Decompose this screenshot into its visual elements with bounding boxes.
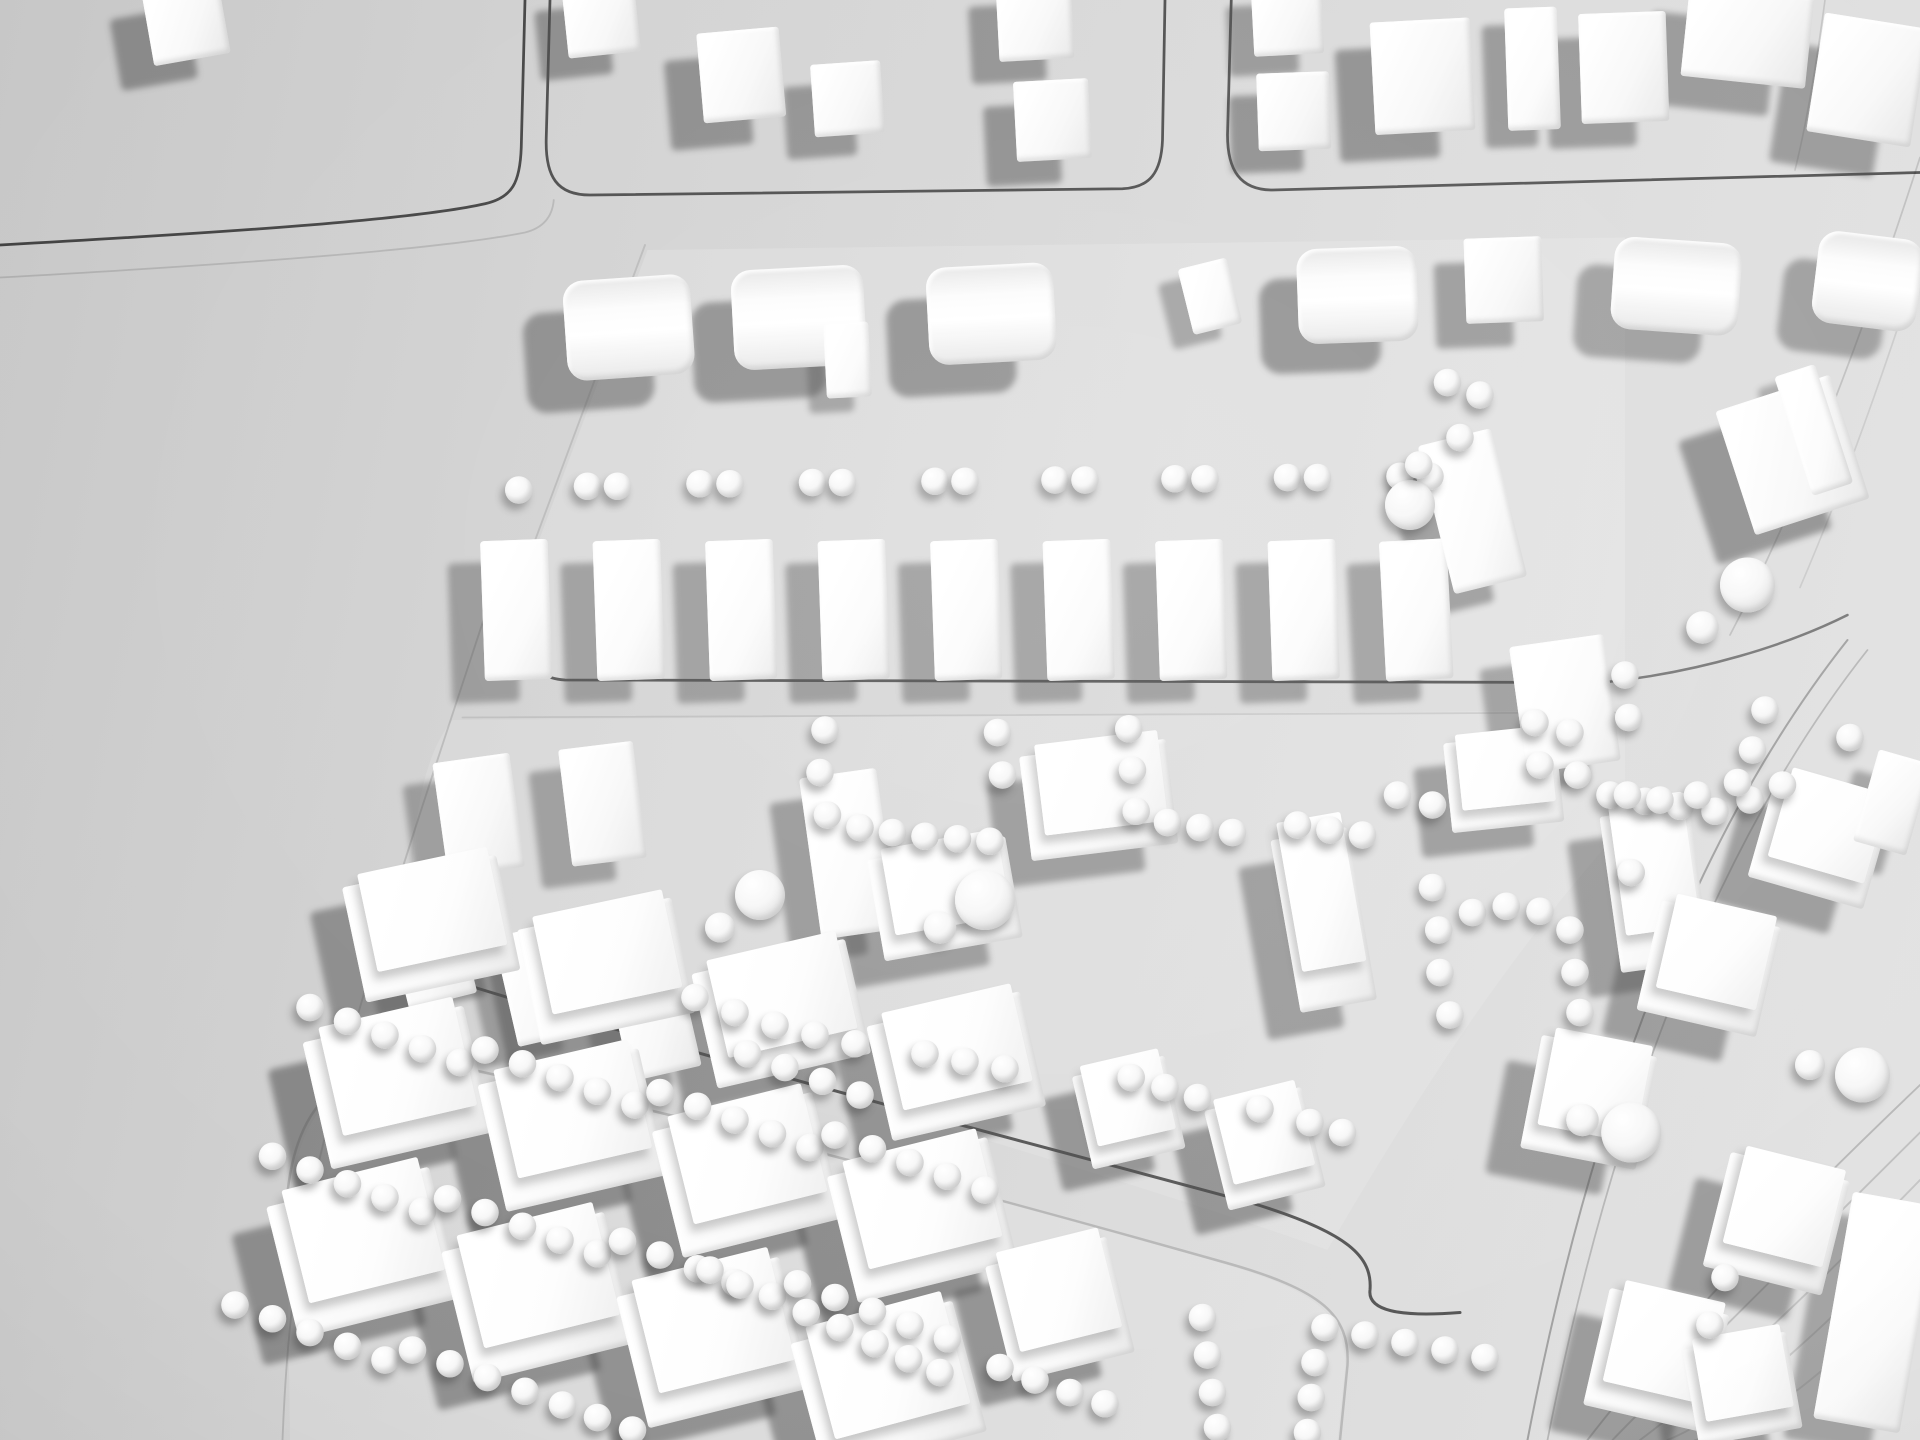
tree-sphere [296, 1319, 324, 1347]
tree-sphere [796, 1134, 824, 1162]
tree-sphere [1686, 611, 1719, 644]
tree-sphere [1564, 761, 1592, 789]
tree-sphere [721, 1106, 749, 1134]
tree-sphere [505, 476, 533, 504]
building-slab [818, 539, 890, 681]
tree-sphere [846, 1081, 874, 1109]
tree-sphere [971, 1176, 999, 1204]
tree-sphere [1021, 1366, 1049, 1394]
building-cube [1256, 71, 1331, 151]
building-slab [480, 539, 552, 681]
tree-sphere [784, 1270, 812, 1298]
tree-sphere [1419, 791, 1447, 819]
tree-sphere [296, 1156, 324, 1184]
tree-sphere [984, 719, 1012, 747]
building-cube [1013, 78, 1092, 162]
tree-sphere [829, 469, 857, 497]
tree-sphere [334, 1170, 362, 1198]
tree-sphere [859, 1135, 887, 1163]
tree-sphere [1556, 916, 1584, 944]
building-podium [1019, 739, 1178, 861]
tree-sphere [696, 1256, 724, 1284]
tree-sphere [1151, 1074, 1179, 1102]
tree-sphere [1724, 769, 1752, 797]
tree-sphere [1835, 1048, 1890, 1103]
tree-sphere [471, 1036, 499, 1064]
tree-sphere [1526, 898, 1554, 926]
street-top-left-block-edge [0, 0, 525, 245]
building-cube [996, 0, 1075, 62]
tree-sphere [409, 1035, 437, 1063]
tree-sphere [334, 1333, 362, 1361]
tree-sphere [986, 1354, 1014, 1382]
tree-sphere [1189, 1304, 1217, 1332]
tree-sphere [1611, 661, 1639, 689]
tree-sphere [735, 870, 785, 920]
tree-sphere [911, 1040, 939, 1068]
building-cube [1806, 13, 1920, 148]
building-cube [558, 741, 647, 867]
tree-sphere [436, 1350, 464, 1378]
building-cube [810, 60, 885, 137]
tree-sphere [801, 1021, 829, 1049]
tree-sphere [1294, 1419, 1322, 1440]
building-slab [1379, 538, 1454, 681]
tree-sphere [1304, 464, 1332, 492]
tree-sphere [584, 1078, 612, 1106]
tree-sphere [759, 1283, 787, 1311]
tree-sphere [716, 470, 744, 498]
tree-sphere [474, 1364, 502, 1392]
tree-sphere [951, 468, 979, 496]
tree-sphere [809, 1068, 837, 1096]
tree-sphere [1351, 1321, 1379, 1349]
tree-sphere [1199, 1379, 1227, 1407]
tree-sphere [1274, 464, 1302, 492]
tree-sphere [1711, 1264, 1739, 1292]
tree-sphere [549, 1391, 577, 1419]
tree-sphere [991, 1055, 1019, 1083]
building-cube [562, 0, 641, 59]
building-cube [1251, 0, 1325, 57]
tree-sphere [509, 1050, 537, 1078]
tree-sphere [446, 1049, 474, 1077]
tree-sphere [471, 1199, 499, 1227]
tree-sphere [921, 468, 949, 496]
tree-sphere [1795, 1050, 1825, 1080]
tree-sphere [759, 1120, 787, 1148]
tree-sphere [621, 1091, 649, 1119]
building-bar [1810, 229, 1920, 334]
tree-sphere [1720, 558, 1775, 613]
building-cube [1578, 11, 1669, 124]
tree-sphere [371, 1184, 399, 1212]
street-right-curve-dark [1603, 615, 1848, 683]
tree-sphere [509, 1213, 537, 1241]
building-cube [696, 27, 786, 124]
tree-sphere [924, 911, 957, 944]
tree-sphere [1436, 1001, 1464, 1029]
tree-sphere [584, 1404, 612, 1432]
tree-sphere [511, 1378, 539, 1406]
tree-sphere [1836, 724, 1864, 752]
tree-sphere [371, 1346, 399, 1374]
tree-sphere [841, 1030, 869, 1058]
tree-sphere [811, 716, 839, 744]
tree-sphere [989, 761, 1017, 789]
tree-sphere [1556, 719, 1584, 747]
tree-sphere [609, 1228, 637, 1256]
tree-sphere [1696, 1311, 1724, 1339]
tree-sphere [399, 1336, 427, 1364]
tree-sphere [934, 1325, 962, 1353]
tree-sphere [793, 1299, 821, 1327]
tree-sphere [1119, 756, 1147, 784]
tree-sphere [1071, 466, 1099, 494]
tree-sphere [1614, 781, 1642, 809]
building-slab [1268, 539, 1340, 681]
building-slab [1509, 634, 1621, 773]
tree-sphere [1751, 696, 1779, 724]
building-cube [1681, 0, 1815, 89]
tree-sphere [814, 801, 842, 829]
tree-sphere [1385, 480, 1435, 530]
tree-sphere [681, 984, 709, 1012]
tree-sphere [1446, 424, 1474, 452]
tree-sphere [1471, 1344, 1499, 1372]
tree-sphere [911, 823, 939, 851]
tree-sphere [1154, 809, 1182, 837]
building-slab [1504, 7, 1561, 131]
tree-sphere [1091, 1390, 1119, 1418]
tree-sphere [686, 470, 714, 498]
tree-sphere [1419, 874, 1447, 902]
tree-sphere [1311, 1314, 1339, 1342]
building-slab [823, 321, 872, 398]
tree-sphere [1194, 1341, 1222, 1369]
tree-sphere [1466, 381, 1494, 409]
tree-sphere [1426, 959, 1454, 987]
tree-sphere [434, 1185, 462, 1213]
tree-sphere [1601, 1103, 1661, 1163]
tree-sphere [951, 1048, 979, 1076]
building-bar [1609, 236, 1743, 337]
building-podium [1682, 1332, 1802, 1440]
model-base-board [0, 0, 1920, 1440]
tree-sphere [861, 1330, 889, 1358]
tree-sphere [1434, 369, 1462, 397]
tree-sphere [1615, 704, 1643, 732]
tree-sphere [1425, 916, 1453, 944]
tree-sphere [684, 1093, 712, 1121]
tree-sphere [546, 1226, 574, 1254]
street-band3-top-faint [463, 713, 1616, 718]
tree-sphere [806, 759, 834, 787]
building-slab [930, 539, 1002, 681]
building-cube [1370, 17, 1476, 135]
tree-sphere [1349, 821, 1377, 849]
tree-sphere [896, 1311, 924, 1339]
tree-sphere [296, 994, 324, 1022]
tree-sphere [1115, 715, 1143, 743]
tree-sphere [1246, 1095, 1274, 1123]
tree-sphere [821, 1121, 849, 1149]
tree-sphere [859, 1298, 887, 1326]
tree-sphere [1186, 814, 1214, 842]
tree-sphere [1184, 1084, 1212, 1112]
tree-sphere [1561, 959, 1589, 987]
tree-sphere [1056, 1379, 1084, 1407]
tree-sphere [821, 1284, 849, 1312]
tree-sphere [726, 1271, 754, 1299]
tree-sphere [721, 999, 749, 1027]
tree-sphere [1405, 451, 1433, 479]
tree-sphere [826, 1314, 854, 1342]
architectural-model-photo: { "scene": { "description": "Black-and-w… [0, 0, 1920, 1440]
tree-sphere [259, 1305, 287, 1333]
tree-sphere [371, 1021, 399, 1049]
tree-sphere [1384, 781, 1412, 809]
tree-sphere [1296, 1109, 1324, 1137]
tree-sphere [846, 814, 874, 842]
street-top-left-second-edge [0, 200, 554, 278]
tree-sphere [646, 1241, 674, 1269]
building-bar [925, 262, 1057, 366]
tree-sphere [1191, 465, 1219, 493]
tree-sphere [1219, 819, 1247, 847]
tree-sphere [761, 1011, 789, 1039]
tree-sphere [1329, 1119, 1357, 1147]
tree-sphere [1118, 1064, 1146, 1092]
tree-sphere [1284, 811, 1312, 839]
tree-sphere [771, 1054, 799, 1082]
tree-sphere [334, 1008, 362, 1036]
building-slab [1043, 539, 1115, 681]
tree-sphere [646, 1079, 674, 1107]
tree-sphere [1161, 465, 1189, 493]
tree-sphere [1646, 786, 1674, 814]
tree-sphere [896, 1149, 924, 1177]
tree-sphere [584, 1240, 612, 1268]
tree-sphere [1493, 893, 1521, 921]
tree-sphere [1566, 1104, 1599, 1137]
tree-sphere [1204, 1414, 1232, 1440]
tree-sphere [1316, 816, 1344, 844]
building-slab [1155, 539, 1227, 681]
tree-sphere [1618, 859, 1646, 887]
tree-sphere [799, 469, 827, 497]
tree-sphere [574, 473, 602, 501]
tree-sphere [221, 1291, 249, 1319]
tree-sphere [619, 1416, 647, 1440]
building-cube [1464, 236, 1544, 324]
tree-sphere [879, 819, 907, 847]
tree-sphere [1769, 771, 1797, 799]
tree-sphere [1301, 1349, 1329, 1377]
tree-sphere [1041, 466, 1069, 494]
building-slab [593, 539, 665, 681]
tree-sphere [955, 870, 1015, 930]
building-bar [1296, 245, 1419, 344]
tree-sphere [1459, 899, 1487, 927]
tree-sphere [1521, 709, 1549, 737]
tree-sphere [259, 1143, 287, 1171]
tree-sphere [926, 1359, 954, 1387]
tree-sphere [1431, 1336, 1459, 1364]
building-slab [705, 539, 777, 681]
tree-sphere [1526, 751, 1554, 779]
building-bar [562, 273, 696, 382]
tree-sphere [1391, 1329, 1419, 1357]
tree-sphere [944, 825, 972, 853]
tree-sphere [604, 473, 632, 501]
tree-sphere [1684, 781, 1712, 809]
tree-sphere [409, 1198, 437, 1226]
tree-sphere [1123, 798, 1151, 826]
tree-sphere [1566, 999, 1594, 1027]
tree-sphere [934, 1163, 962, 1191]
tree-sphere [546, 1064, 574, 1092]
tree-sphere [976, 828, 1004, 856]
tree-sphere [895, 1345, 923, 1373]
building-roof-slab [1034, 730, 1168, 835]
tree-sphere [1298, 1384, 1326, 1412]
tree-sphere [1739, 736, 1767, 764]
tree-sphere [705, 913, 735, 943]
tree-sphere [734, 1040, 762, 1068]
